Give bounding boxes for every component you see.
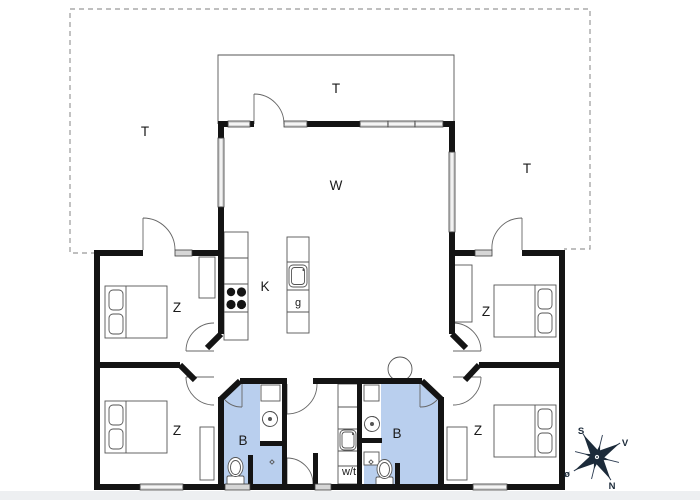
wardrobe-bottom-left: [200, 427, 214, 480]
door-utility-top: [287, 384, 317, 414]
compass-west-label: V: [622, 438, 629, 449]
bed-top-right: [494, 285, 556, 337]
furniture: [105, 232, 556, 486]
door-bedroom-bottom-left: [186, 377, 214, 405]
bed-bottom-right: [494, 405, 556, 457]
label-bedroom-bottom-right: Z: [474, 423, 482, 438]
page-edge-band: [0, 491, 700, 500]
bathroom-fills: [224, 383, 438, 484]
kitchen-island: [287, 237, 309, 333]
label-terrace-left: T: [141, 124, 149, 139]
label-bedroom-top-left: Z: [173, 300, 181, 315]
compass-rose-icon: S V N ø: [560, 420, 634, 494]
floor-plan-page: T T T W K g Z Z Z Z B B w/t S V N ø: [0, 0, 700, 500]
label-kitchen: K: [260, 279, 269, 294]
bed-top-left: [105, 286, 167, 338]
floor-plan-svg: T T T W K g Z Z Z Z B B w/t S V N ø: [0, 0, 700, 500]
door-utility-exterior: [287, 458, 313, 484]
door-terrace-left-bedroom: [143, 218, 175, 250]
toilet-icon: [376, 460, 393, 487]
door-living-to-terrace: [254, 94, 284, 124]
compass-south-label: S: [578, 426, 584, 437]
label-bedroom-top-right: Z: [482, 304, 490, 319]
toilet-icon: [227, 458, 244, 486]
label-living-room: W: [330, 178, 343, 193]
label-island-dishwasher: g: [295, 297, 301, 309]
label-bathroom-right: B: [392, 426, 401, 441]
compass-north-label: N: [609, 481, 616, 492]
label-bedroom-bottom-left: Z: [173, 423, 181, 438]
hall-round-table: [388, 357, 412, 381]
bed-bottom-left: [105, 401, 167, 453]
compass-east-label: ø: [564, 469, 570, 480]
door-terrace-right-bedroom: [492, 218, 522, 250]
label-terrace-top: T: [332, 81, 340, 96]
kitchen-counter: [224, 232, 248, 340]
label-utility-room: w/t: [341, 466, 356, 478]
wardrobe-top-left: [199, 257, 215, 298]
wardrobe-bottom-right: [447, 427, 467, 480]
label-terrace-right: T: [523, 161, 531, 176]
label-bathroom-left: B: [238, 433, 247, 448]
